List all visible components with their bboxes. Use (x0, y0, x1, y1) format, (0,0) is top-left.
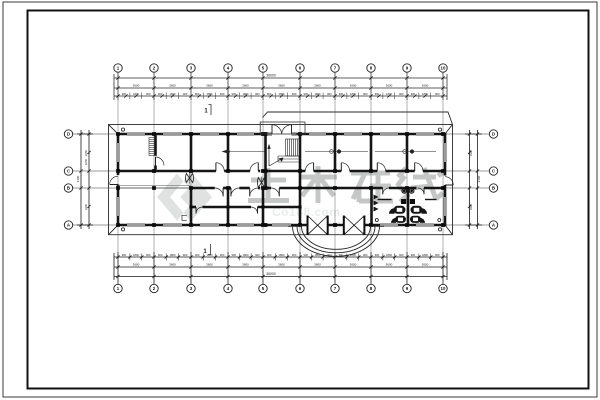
svg-text:1800: 1800 (243, 253, 249, 257)
svg-text:900: 900 (327, 92, 332, 96)
svg-text:3600: 3600 (386, 262, 393, 266)
svg-text:3600: 3600 (133, 262, 140, 266)
svg-text:36000: 36000 (266, 272, 276, 276)
svg-text:900: 900 (267, 253, 272, 257)
svg-text:3600: 3600 (350, 262, 357, 266)
svg-text:900: 900 (292, 253, 297, 257)
svg-text:1800: 1800 (422, 253, 428, 257)
svg-text:1800: 1800 (350, 92, 356, 96)
svg-text:D: D (492, 132, 495, 137)
svg-text:1800: 1800 (315, 92, 321, 96)
svg-text:900: 900 (375, 92, 380, 96)
svg-text:D: D (67, 132, 70, 137)
svg-text:3600: 3600 (206, 84, 213, 88)
svg-text:36000: 36000 (266, 74, 276, 78)
svg-text:9100: 9100 (76, 175, 80, 182)
svg-text:1800: 1800 (279, 253, 285, 257)
svg-text:900: 900 (363, 253, 368, 257)
svg-text:900: 900 (255, 92, 260, 96)
svg-text:900: 900 (292, 92, 297, 96)
svg-text:900: 900 (232, 253, 237, 257)
svg-text:900: 900 (399, 253, 404, 257)
svg-text:900: 900 (304, 253, 309, 257)
svg-text:900: 900 (399, 92, 404, 96)
svg-text:900: 900 (183, 253, 188, 257)
svg-text:3600: 3600 (350, 84, 357, 88)
svg-text:3600: 3600 (133, 84, 140, 88)
svg-text:B: B (492, 186, 495, 191)
svg-text:900: 900 (255, 253, 260, 257)
svg-text:9100: 9100 (477, 175, 481, 182)
svg-text:10: 10 (441, 286, 446, 291)
svg-text:900: 900 (339, 92, 344, 96)
svg-text:900: 900 (158, 92, 163, 96)
svg-text:900: 900 (435, 92, 440, 96)
svg-text:1800: 1800 (279, 92, 285, 96)
svg-text:3600: 3600 (386, 84, 393, 88)
svg-text:B: B (67, 186, 70, 191)
svg-text:900: 900 (220, 92, 225, 96)
svg-text:900: 900 (195, 253, 200, 257)
svg-text:900: 900 (122, 253, 127, 257)
svg-text:900: 900 (183, 92, 188, 96)
svg-text:900: 900 (158, 253, 163, 257)
svg-text:3600: 3600 (422, 84, 429, 88)
svg-text:1800: 1800 (133, 253, 139, 257)
svg-text:1650: 1650 (84, 158, 88, 165)
svg-text:1800: 1800 (422, 92, 428, 96)
svg-text:900: 900 (375, 253, 380, 257)
svg-text:3600: 3600 (242, 84, 249, 88)
svg-text:900: 900 (195, 92, 200, 96)
svg-text:900: 900 (411, 253, 416, 257)
svg-text:900: 900 (411, 92, 416, 96)
svg-text:1800: 1800 (207, 92, 213, 96)
svg-text:900: 900 (363, 92, 368, 96)
svg-text:900: 900 (267, 92, 272, 96)
svg-text:1800: 1800 (386, 92, 392, 96)
svg-text:3600: 3600 (422, 262, 429, 266)
svg-text:900: 900 (146, 92, 151, 96)
svg-text:900: 900 (146, 253, 151, 257)
svg-text:3600: 3600 (206, 262, 213, 266)
svg-text:900: 900 (220, 253, 225, 257)
svg-text:900: 900 (232, 92, 237, 96)
svg-text:1800: 1800 (243, 92, 249, 96)
svg-text:3600: 3600 (278, 84, 285, 88)
svg-text:1800: 1800 (170, 253, 176, 257)
svg-text:3300: 3300 (469, 149, 473, 156)
svg-text:3600: 3600 (169, 84, 176, 88)
svg-text:3600: 3600 (314, 262, 321, 266)
svg-text:1800: 1800 (170, 92, 176, 96)
svg-text:900: 900 (304, 92, 309, 96)
svg-text:1650: 1650 (84, 149, 88, 156)
svg-text:3600: 3600 (314, 84, 321, 88)
svg-text:3600: 3600 (169, 262, 176, 266)
svg-text:3300: 3300 (84, 203, 88, 210)
svg-text:1800: 1800 (386, 253, 392, 257)
svg-text:10: 10 (441, 66, 446, 71)
svg-text:900: 900 (435, 253, 440, 257)
svg-text:900: 900 (122, 92, 127, 96)
svg-text:1800: 1800 (133, 92, 139, 96)
svg-text:3600: 3600 (278, 262, 285, 266)
svg-text:3300: 3300 (469, 203, 473, 210)
svg-text:3600: 3600 (242, 262, 249, 266)
